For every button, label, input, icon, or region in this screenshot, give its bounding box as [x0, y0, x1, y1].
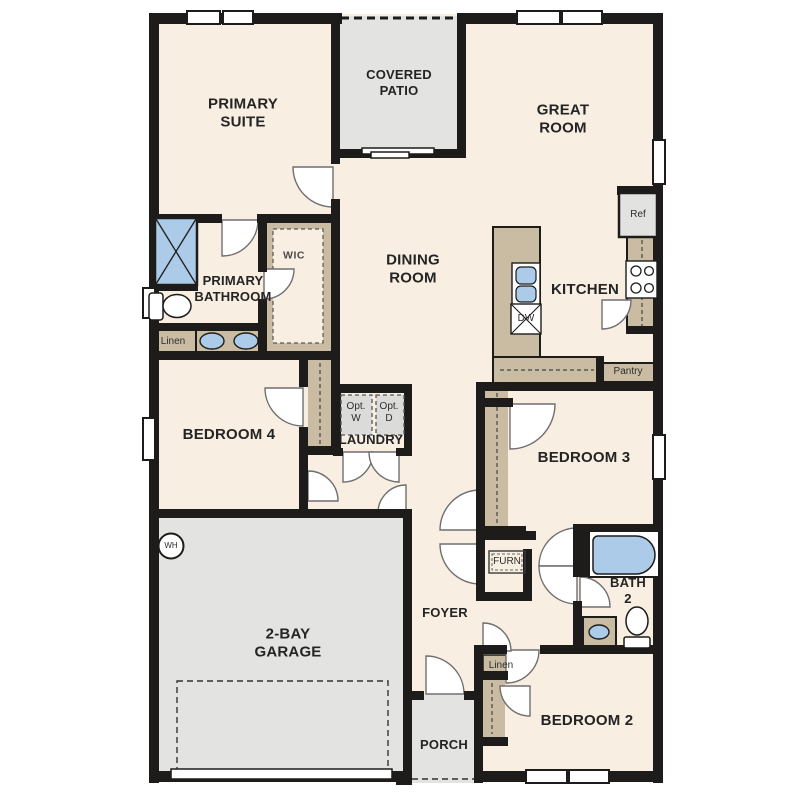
room-label-bedroom-3: BEDROOM 3	[538, 449, 631, 467]
room-label-garage: 2-BAY GARAGE	[254, 626, 321, 663]
window-bedroom3	[653, 435, 665, 479]
fixture-label-pantry: Pantry	[614, 366, 643, 378]
room-label-kitchen: KITCHEN	[551, 281, 619, 299]
window-great-2	[562, 11, 602, 24]
fixture-label-refrigerator: Ref	[630, 209, 646, 221]
room-label-primary-bathroom: PRIMARY BATHROOM	[194, 273, 271, 305]
room-label-foyer: FOYER	[422, 605, 468, 621]
vanity-sink-1	[200, 333, 224, 349]
island-sink-basin-1	[516, 267, 536, 284]
island-sink-basin-2	[516, 286, 536, 302]
fixture-label-opt-washer: Opt. W	[347, 401, 366, 425]
fixture-label-opt-dryer: Opt. D	[380, 401, 399, 425]
primary-toilet-bowl	[163, 295, 191, 318]
bath2-sink	[589, 625, 609, 639]
tub	[593, 536, 655, 574]
fixture-label-dishwasher: DW	[518, 313, 535, 325]
bath2-toilet-tank	[624, 637, 650, 648]
room-label-covered-patio: COVERED PATIO	[366, 67, 432, 99]
vanity-sink-2	[234, 333, 258, 349]
room-label-bedroom-2: BEDROOM 2	[541, 712, 634, 730]
window-primary-1	[187, 11, 220, 24]
window-bedroom2-2	[569, 770, 609, 783]
room-label-primary-suite: PRIMARY SUITE	[208, 96, 278, 133]
floor-plan: PRIMARY SUITE COVERED PATIO GREAT ROOM D…	[0, 0, 810, 810]
window-great-right	[653, 140, 665, 184]
room-label-dining-room: DINING ROOM	[386, 252, 440, 289]
primary-toilet-tank	[149, 293, 163, 320]
floor-plan-drawing	[0, 0, 810, 810]
bath2-toilet-bowl	[626, 607, 648, 635]
room-label-great-room: GREAT ROOM	[537, 102, 589, 139]
window-great-1	[517, 11, 560, 24]
bedroom3-closet	[485, 390, 508, 531]
room-label-wic: WIC	[283, 250, 305, 263]
room-label-laundry: LAUNDRY	[339, 432, 403, 448]
window-primary-2	[223, 11, 253, 24]
room-label-bedroom-4: BEDROOM 4	[183, 426, 276, 444]
fixture-label-water-heater: WH	[164, 541, 177, 551]
garage-door-slab	[171, 769, 392, 779]
fixture-label-linen-hall: Linen	[489, 660, 513, 672]
fixture-label-linen-primary: Linen	[161, 336, 185, 348]
window-bedroom2-1	[526, 770, 567, 783]
window-bedroom4	[143, 418, 155, 460]
room-label-bath-2: BATH 2	[610, 575, 646, 607]
room-label-porch: PORCH	[420, 737, 468, 753]
cooktop	[626, 261, 657, 298]
fixture-label-furnace: FURN	[493, 556, 521, 568]
